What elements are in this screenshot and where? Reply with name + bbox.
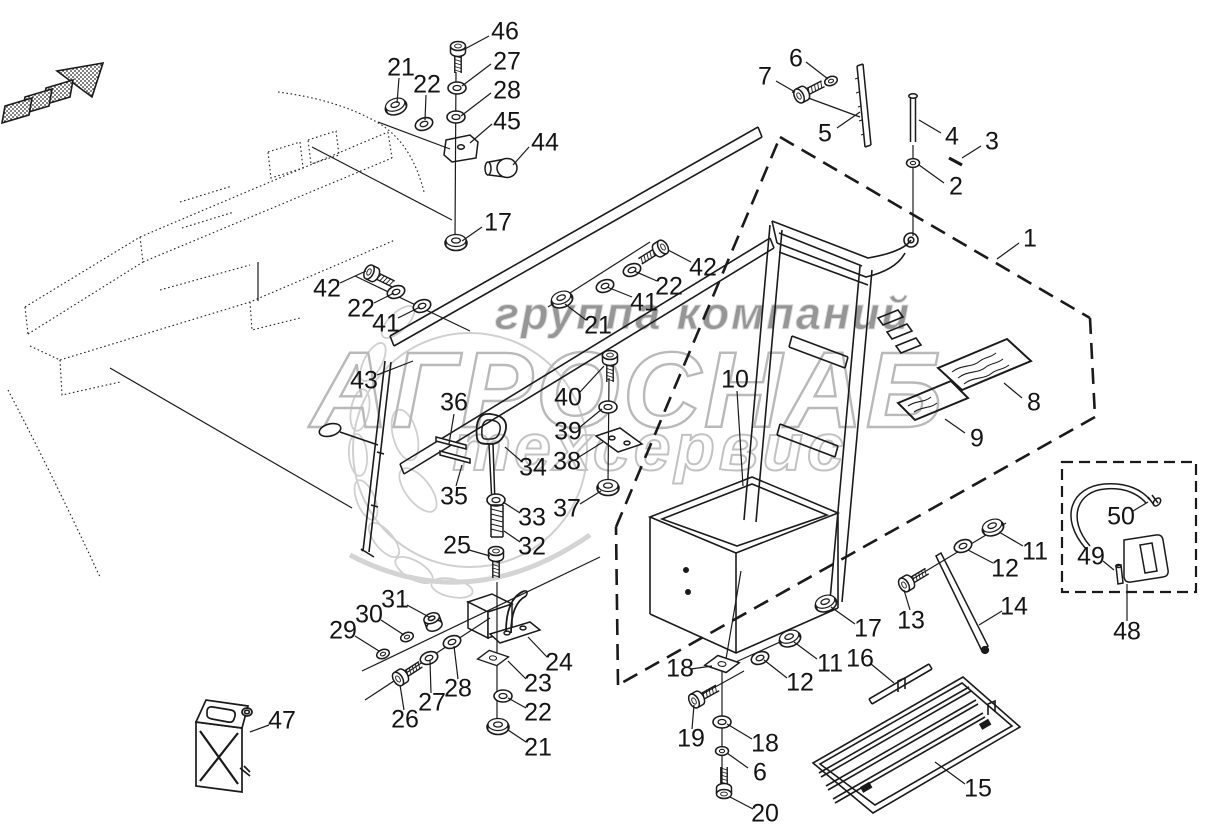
part-label-19: 19 [677, 727, 705, 752]
part-label-36: 36 [440, 391, 468, 416]
part-label-7: 7 [758, 65, 772, 90]
part-label-48: 48 [1113, 620, 1141, 645]
part-label-4: 4 [945, 125, 959, 150]
part-label-9: 9 [970, 427, 984, 452]
part-label-17: 17 [854, 617, 882, 642]
part-label-33: 33 [518, 506, 546, 531]
part-label-42: 42 [689, 256, 717, 281]
part-label-32: 32 [518, 535, 546, 560]
part-label-47: 47 [268, 709, 296, 734]
part-label-10: 10 [721, 368, 749, 393]
part-label-49: 49 [1077, 545, 1105, 570]
part-label-6: 6 [789, 47, 803, 72]
part-label-12: 12 [786, 671, 814, 696]
part-label-29: 29 [329, 619, 357, 644]
part-label-22: 22 [413, 73, 441, 98]
part-label-21: 21 [584, 314, 612, 339]
part-label-37: 37 [553, 497, 581, 522]
part-label-26: 26 [391, 708, 419, 733]
part-label-27: 27 [418, 691, 446, 716]
part-label-28: 28 [444, 677, 472, 702]
part-label-44: 44 [531, 131, 559, 156]
part-label-8: 8 [1027, 391, 1041, 416]
part-label-25: 25 [443, 534, 471, 559]
part-label-14: 14 [1000, 595, 1028, 620]
part-label-27: 27 [493, 50, 521, 75]
part-label-21: 21 [387, 56, 415, 81]
part-label-15: 15 [964, 777, 992, 802]
part-label-18: 18 [666, 657, 694, 682]
part-label-5: 5 [818, 122, 832, 147]
part-label-28: 28 [493, 79, 521, 104]
part-label-12: 12 [991, 557, 1019, 582]
part-label-17: 17 [484, 211, 512, 236]
part-label-1: 1 [1023, 227, 1037, 252]
part-label-11: 11 [1022, 540, 1048, 565]
part-label-13: 13 [897, 609, 925, 634]
part-label-23: 23 [524, 672, 552, 697]
part-label-35: 35 [440, 485, 468, 510]
part-label-16: 16 [846, 647, 874, 672]
exploded-parts-diagram-page: группа компаний АГРОСНАБ техсервис [0, 0, 1218, 838]
part-label-38: 38 [553, 450, 581, 475]
part-label-39: 39 [554, 420, 582, 445]
part-label-50: 50 [1107, 505, 1135, 530]
part-label-46: 46 [491, 20, 519, 45]
part-labels-layer: 4627284544212217675432142224143422241213… [0, 0, 1218, 838]
part-label-11: 11 [817, 652, 843, 677]
part-label-18: 18 [751, 732, 779, 757]
part-label-21: 21 [524, 736, 552, 761]
part-label-42: 42 [313, 277, 341, 302]
part-label-41: 41 [372, 312, 400, 337]
part-label-6: 6 [753, 761, 767, 786]
part-label-20: 20 [751, 802, 779, 827]
part-label-30: 30 [355, 603, 383, 628]
part-label-22: 22 [655, 275, 683, 300]
part-label-22: 22 [347, 297, 375, 322]
part-label-41: 41 [630, 291, 658, 316]
part-label-34: 34 [519, 456, 547, 481]
part-label-22: 22 [524, 701, 552, 726]
part-label-43: 43 [350, 369, 378, 394]
part-label-40: 40 [554, 386, 582, 411]
part-label-31: 31 [381, 588, 409, 613]
part-label-2: 2 [949, 175, 963, 200]
part-label-3: 3 [985, 130, 999, 155]
part-label-45: 45 [493, 110, 521, 135]
